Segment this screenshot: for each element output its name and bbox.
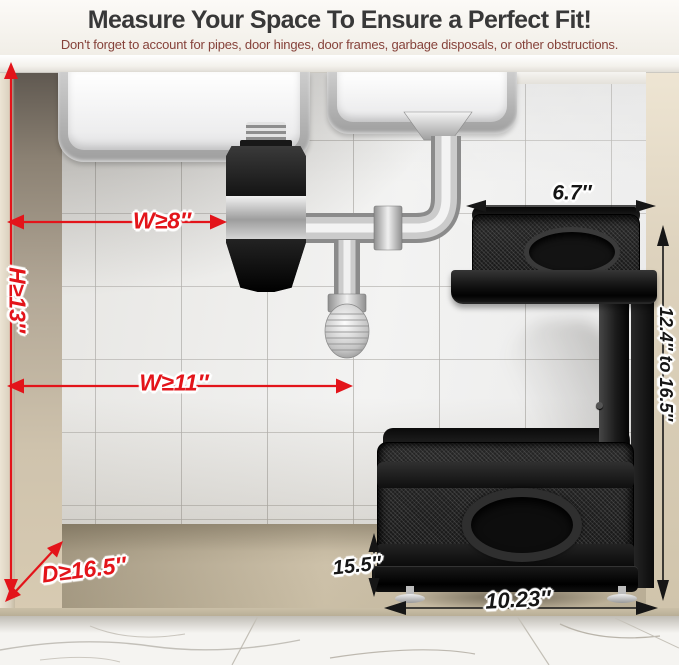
dim-min-height-label: H≥13″ bbox=[6, 267, 29, 333]
dim-adjustable-height-label: 12.4″ to 16.5″ bbox=[657, 307, 675, 421]
dim-min-width-disposal-label: W≥8″ bbox=[133, 210, 191, 233]
dim-rack-height-label: 15.5″ bbox=[332, 554, 382, 579]
product-measurement-infographic: Measure Your Space To Ensure a Perfect F… bbox=[0, 0, 679, 665]
dim-top-basket-width-label: 6.7″ bbox=[552, 183, 591, 204]
dim-min-width-rack-label: W≥11″ bbox=[139, 372, 208, 395]
dim-rack-width-label: 10.23″ bbox=[485, 587, 552, 612]
